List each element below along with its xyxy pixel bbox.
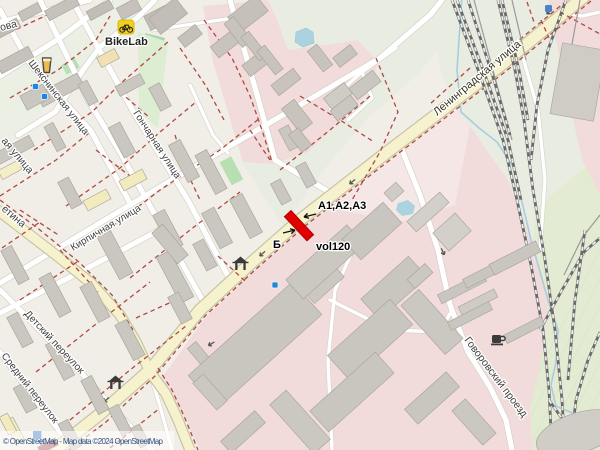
svg-text:А1,А2,А3: А1,А2,А3 [318, 200, 366, 212]
svg-text:vol120: vol120 [316, 241, 350, 253]
svg-text:© OpenStreetMap - Map data ©20: © OpenStreetMap - Map data ©2024 OpenStr… [3, 437, 164, 446]
svg-text:Б: Б [273, 239, 281, 251]
svg-text:BikeLab: BikeLab [105, 36, 148, 48]
